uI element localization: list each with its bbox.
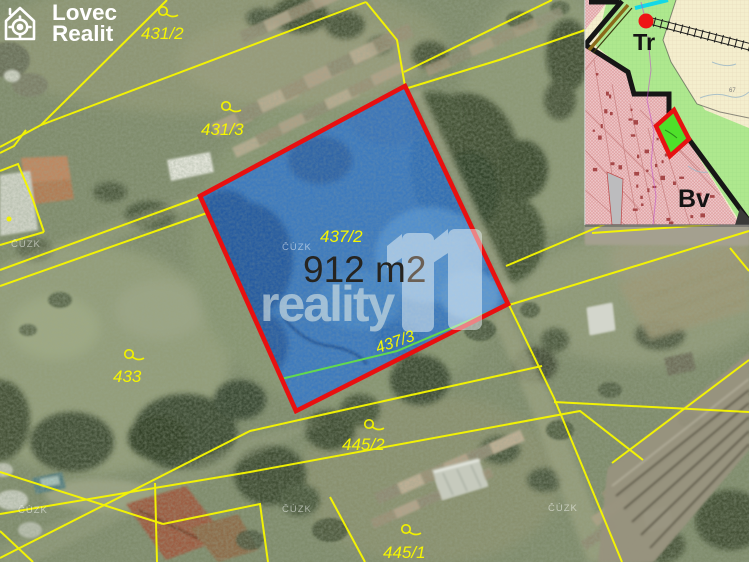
svg-text:445/2: 445/2 [342,435,385,454]
svg-text:ČÚZK: ČÚZK [18,505,48,516]
svg-text:431/2: 431/2 [141,24,184,43]
svg-text:Tr: Tr [633,29,655,55]
svg-text:912 m2: 912 m2 [303,249,426,290]
svg-text:445/1: 445/1 [383,543,426,562]
svg-text:437/2: 437/2 [320,227,363,246]
svg-text:433: 433 [113,367,142,386]
svg-text:ČÚZK: ČÚZK [11,239,41,250]
svg-text:ČÚZK: ČÚZK [548,503,578,514]
svg-text:ČÚZK: ČÚZK [282,242,312,253]
svg-text:67: 67 [729,88,736,94]
svg-text:ČÚZK: ČÚZK [282,504,312,515]
svg-text:Realit: Realit [52,21,114,46]
svg-text:Bv: Bv [678,185,710,213]
svg-text:431/3: 431/3 [201,120,244,139]
